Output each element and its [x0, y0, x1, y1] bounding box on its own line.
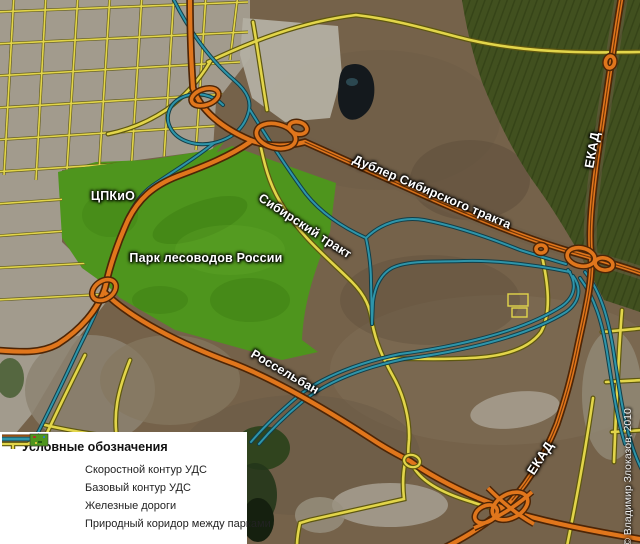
legend-item-speed-contour: Скоростной контур УДС [22, 461, 247, 479]
label-park-cpkio: ЦПКиО [91, 189, 135, 203]
legend-item-railway: Железные дороги [22, 497, 247, 515]
legend-title: Условные обозначения [22, 440, 247, 454]
legend-item-nature-corridor: Природный коридор между парками [22, 515, 247, 533]
legend-label-base-contour: Базовый контур УДС [85, 482, 191, 494]
legend-label-nature-corridor: Природный коридор между парками [85, 518, 271, 530]
map-screenshot: ЦПКиО Парк лесоводов России Сибирский тр… [0, 0, 640, 544]
copyright-text: © Владимир Злоказов, 2010 [622, 408, 634, 544]
legend-label-speed-contour: Скоростной контур УДС [85, 464, 207, 476]
legend-label-railway: Железные дороги [85, 500, 176, 512]
legend-item-base-contour: Базовый контур УДС [22, 479, 247, 497]
label-park-lesovodov: Парк лесоводов России [129, 251, 282, 265]
legend-panel: Условные обозначения Скоростной контур У… [0, 432, 247, 544]
